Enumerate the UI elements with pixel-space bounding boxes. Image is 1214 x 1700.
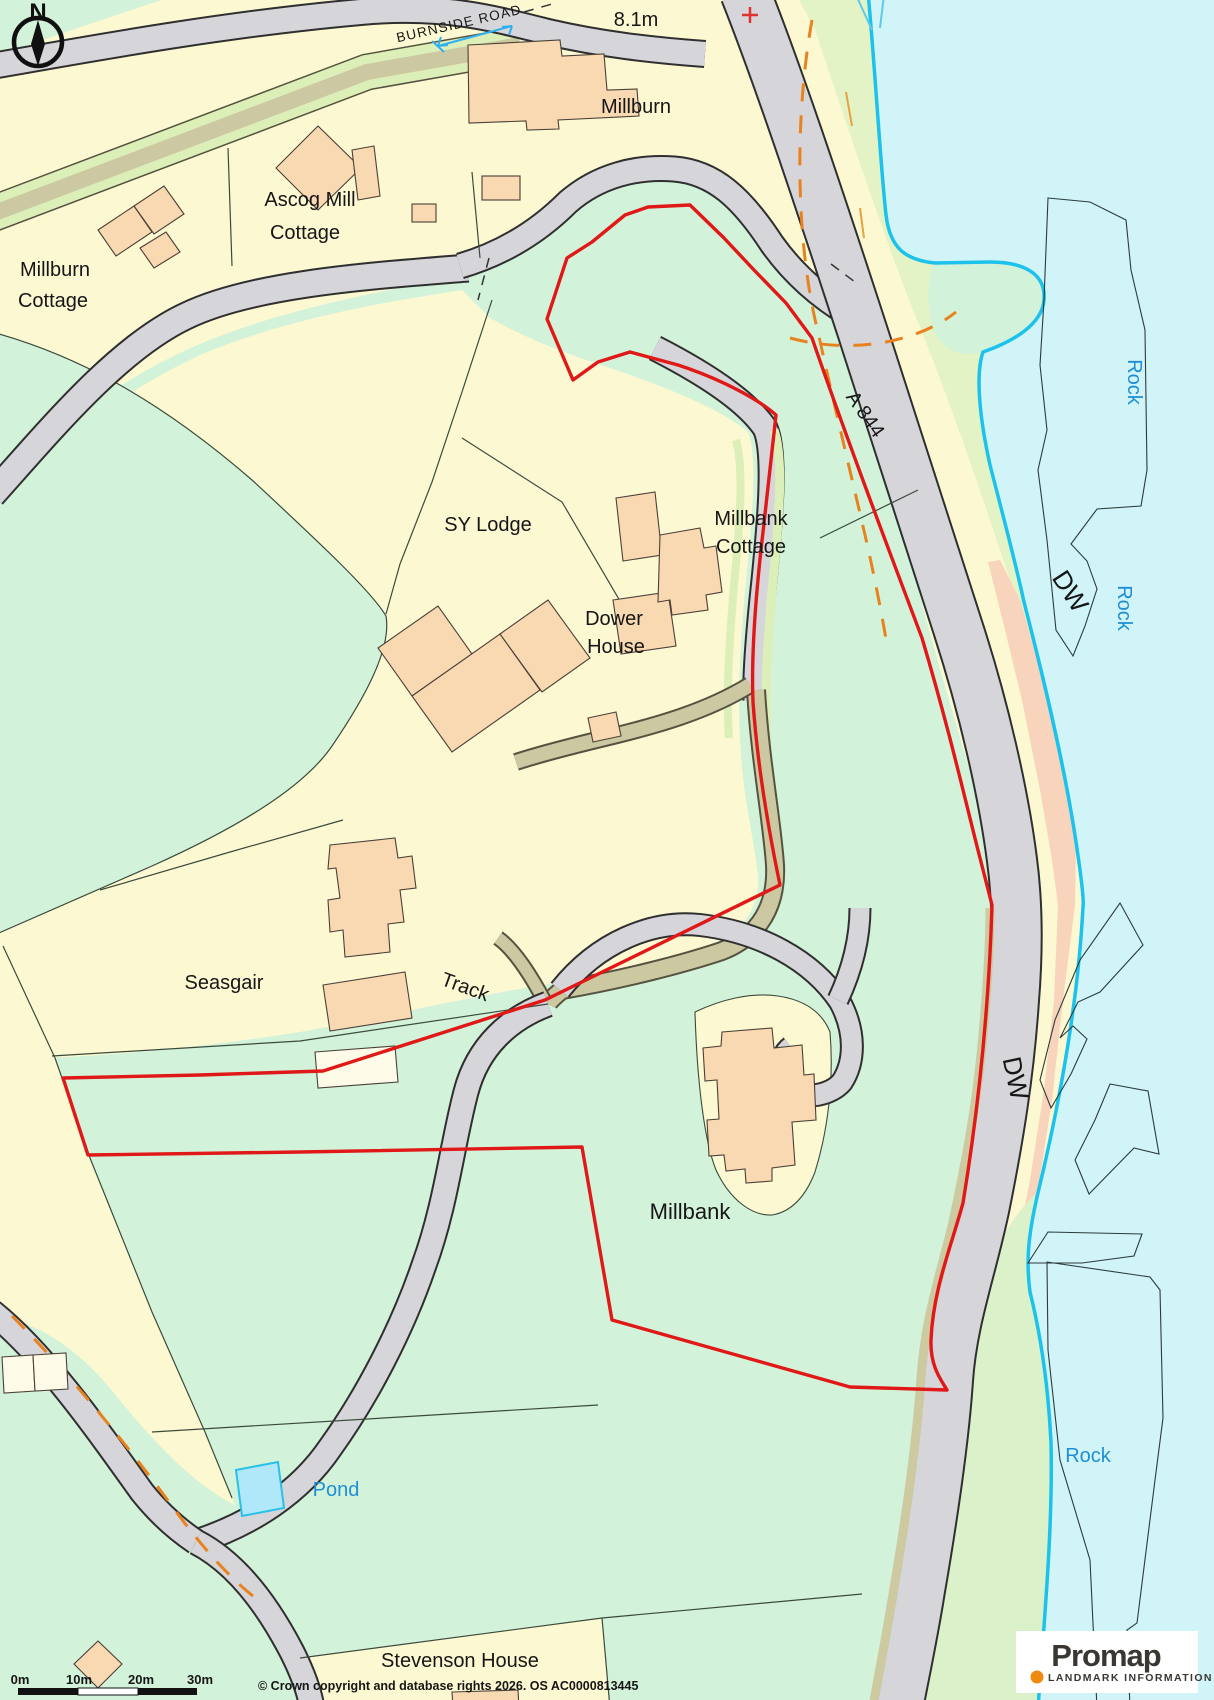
label-rock-2: Rock [1113,585,1135,632]
label-pond: Pond [313,1479,360,1501]
label-seasgair: Seasgair [185,972,264,994]
scale-seg-3 [138,1688,197,1695]
logo-dot-icon [1031,1671,1044,1684]
label-sy-lodge: SY Lodge [444,514,532,536]
label-millburn-cottage-1: Millburn [20,259,90,281]
label-millburn: Millburn [601,96,671,118]
logo-tagline: LANDMARK INFORMATION [1048,1672,1213,1684]
promap-logo: Promap LANDMARK INFORMATION [1016,1631,1213,1693]
label-millbank-cottage-2: Cottage [716,536,786,558]
copyright-text: © Crown copyright and database rights 20… [258,1679,638,1693]
scale-tick-20: 20m [128,1672,154,1687]
label-ascog-mill-2: Cottage [270,222,340,244]
label-dower-1: Dower [585,608,643,630]
label-dower-2: House [587,636,645,658]
building-small-drive [588,712,621,742]
logo-brand: Promap [1051,1638,1160,1673]
label-ascog-mill-1: Ascog Mill [264,189,355,211]
label-spot-height: 8.1m [614,9,658,31]
scale-tick-30: 30m [187,1672,213,1687]
building-left-edge-b [33,1353,68,1391]
building-left-edge-a [2,1355,35,1393]
scale-tick-10: 10m [66,1672,92,1687]
compass-n-letter: N [29,0,46,26]
building-shed-1 [482,176,520,200]
scale-tick-0: 0m [11,1672,30,1687]
map-canvas: BURNSIDE ROAD 8.1m Millburn Ascog Mill C… [0,0,1214,1700]
building-tall [616,492,662,561]
map-export-page: BURNSIDE ROAD 8.1m Millburn Ascog Mill C… [0,0,1214,1700]
scale-seg-1 [18,1688,78,1695]
label-millbank: Millbank [650,1199,732,1224]
label-millbank-cottage-1: Millbank [714,508,788,530]
pond-shape [236,1462,284,1516]
label-millburn-cottage-2: Cottage [18,290,88,312]
label-stevenson-house: Stevenson House [381,1650,539,1672]
building-shed-2 [412,204,436,222]
label-rock-3: Rock [1065,1445,1112,1467]
label-rock-1: Rock [1123,359,1145,406]
scale-seg-2 [78,1688,138,1695]
